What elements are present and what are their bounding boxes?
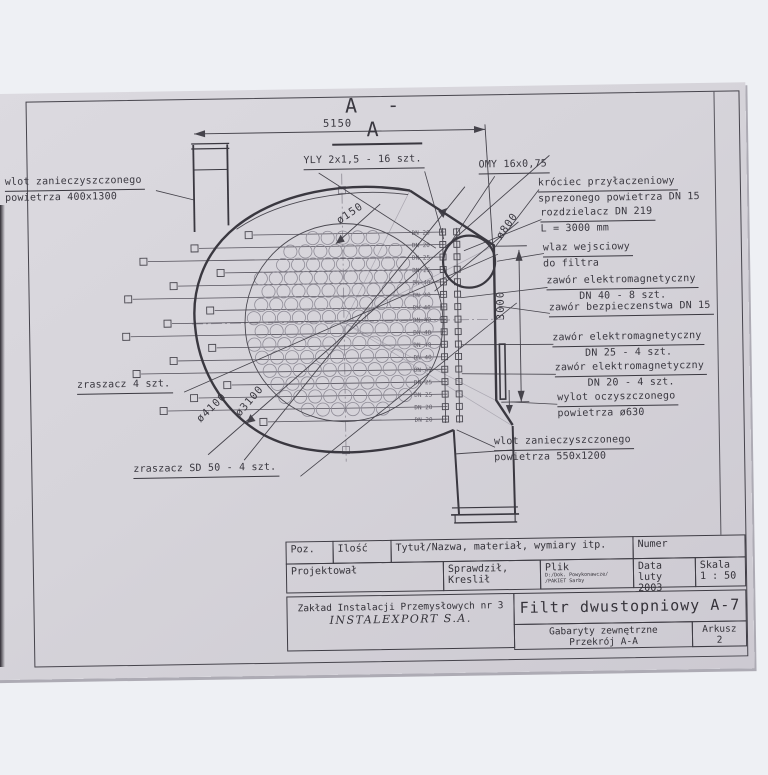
top-duct-left: [193, 145, 194, 232]
label-krociec: króciec przyłaczeniowy sprezonego powiet…: [538, 174, 700, 207]
photo-of-drawing: DN 20DN 20DN 25DN 25DN 40DN 40DN 40DN 40…: [0, 0, 768, 768]
dn-row-label: DN 20: [414, 404, 433, 411]
label-cable-yly: YLY 2x1,5 - 16 szt.: [303, 152, 424, 170]
dn-row-label: DN 40: [413, 317, 432, 324]
bottom-duct-flange: [454, 522, 517, 523]
distributor-headers: [443, 228, 460, 423]
tb-poz: Poz.: [285, 541, 333, 565]
label-inlet-bottom: wlot zanieczyszczonego powietrza 550x120…: [494, 433, 634, 465]
dn-row-label: DN 40: [413, 292, 432, 299]
tb-plik: Plik D:/Dok. Powykonawcze/ /PAKIET Sarby: [540, 558, 634, 589]
tube-bundle-and-valve-rows: DN 20DN 20DN 25DN 25DN 40DN 40DN 40DN 40…: [121, 228, 463, 428]
dn-row-label: DN 20: [415, 417, 434, 424]
tb-gabaryty: Gabaryty zewnętrzne Przekrój A-A: [514, 621, 693, 650]
dn-row-label: DN 40: [413, 329, 432, 336]
label-sprayer-sd: zraszacz SD 50 - 4 szt.: [133, 461, 279, 479]
tb-arkusz: Arkusz 2: [692, 620, 747, 647]
label-wylot: wylot oczyszczonego powietrza ø630: [557, 389, 679, 421]
label-wlaz: wlaz wejsciowy do filtra: [543, 240, 634, 271]
tb-skala: Skala 1 : 50: [695, 556, 746, 587]
tb-ilosc: Ilość: [332, 540, 391, 564]
photo-edge-shadow: [0, 205, 5, 667]
top-duct-flange: [194, 169, 228, 170]
dn-row-label: DN 25: [414, 392, 433, 399]
dim-5150-extension: [485, 124, 493, 247]
dim-3000-line: [519, 250, 521, 402]
outlet-flange-bar: [499, 344, 505, 399]
tb-drawing-title: Filtr dwustopniowy A-7: [513, 589, 746, 625]
dim-3000: 3000: [495, 291, 507, 320]
dim-5150: 5150: [323, 117, 352, 129]
label-inlet-top: wlot zanieczyszczonego powietrza 400x130…: [5, 174, 145, 206]
label-zawor-dn20: zawór elektromagnetyczny DN 20 - 4 szt.: [555, 359, 708, 391]
label-zawor-dn25: zawór elektromagnetyczny DN 25 - 4 szt.: [552, 329, 705, 361]
manhole-circle: [443, 235, 496, 288]
label-rozdzielacz: rozdzielacz DN 219 L = 3000 mm: [540, 205, 655, 237]
tb-firma: Zakład Instalacji Przemysłowych nr 3 INS…: [286, 593, 515, 652]
label-zawor-bezp: zawór bezpieczenstwa DN 15: [549, 299, 714, 318]
tb-projektowal: Projektował: [286, 561, 444, 593]
top-duct-right: [227, 144, 228, 225]
label-cable-omy: OMY 16x0,75: [478, 157, 550, 174]
label-sprayer: zraszacz 4 szt.: [77, 377, 174, 395]
tb-numer: Numer: [632, 534, 745, 559]
bottom-duct-left: [454, 430, 459, 515]
tb-data: Data luty 2003: [633, 557, 696, 588]
tb-sprawdzil: Sprawdził, Kreslił: [443, 560, 541, 592]
paper-sheet: DN 20DN 20DN 25DN 25DN 40DN 40DN 40DN 40…: [0, 0, 768, 774]
